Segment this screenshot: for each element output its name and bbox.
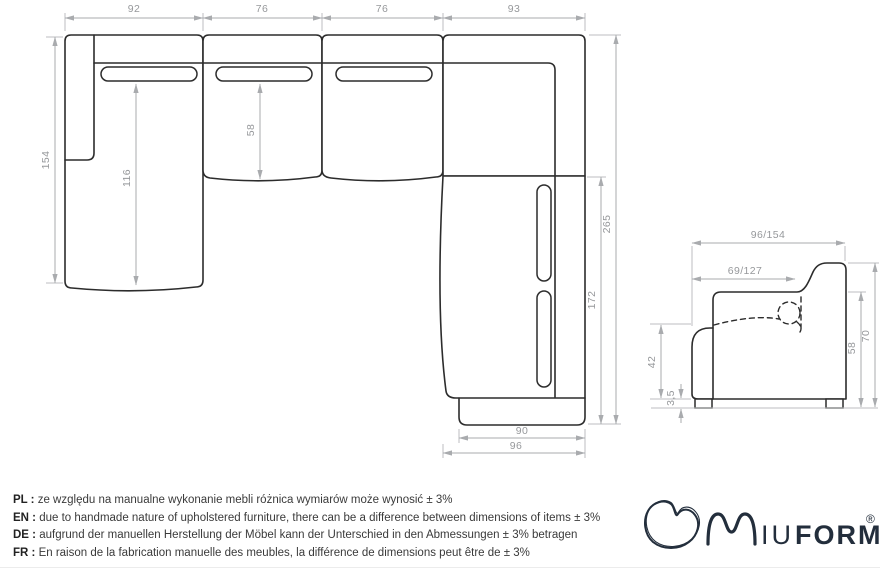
logo-m-glyph xyxy=(708,514,755,544)
dim-total-height: 70 xyxy=(860,330,872,342)
dim-chaise-seat: 116 xyxy=(121,169,133,187)
headrest-strip-2 xyxy=(216,67,312,81)
note-de-text: aufgrund der manuellen Herstellung der M… xyxy=(39,529,577,541)
dim-leg-height: 3,5 xyxy=(665,390,677,406)
corner-section xyxy=(443,35,585,176)
profile-leg-back xyxy=(826,399,843,408)
dim-right-total: 265 xyxy=(601,215,613,234)
right-section xyxy=(440,176,585,398)
note-de: DE : aufgrund der manuellen Herstellung … xyxy=(13,527,600,545)
dim-width-seg1: 92 xyxy=(128,3,140,15)
dim-bottom-width: 96 xyxy=(510,440,522,452)
note-en-text: due to handmade nature of upholstered fu… xyxy=(39,512,600,524)
profile-leg-front xyxy=(695,399,712,408)
headrest-strip-5 xyxy=(537,291,551,387)
dim-seat-depth: 58 xyxy=(245,124,257,136)
dim-back-height: 58 xyxy=(846,342,858,354)
dimension-sheet: { "plan": { "seg1": "92", "seg2": "76", … xyxy=(0,0,880,580)
profile-body xyxy=(713,263,846,399)
profile-view: 96/154 69/127 42 3,5 58 70 xyxy=(646,229,879,423)
dim-width-seg3: 76 xyxy=(376,3,388,15)
dim-seat-depth-profile: 69/127 xyxy=(728,265,763,277)
note-pl: PL : ze względu na manualne wykonanie me… xyxy=(13,492,600,510)
seat-section-3 xyxy=(322,35,443,181)
dim-seat-height: 42 xyxy=(646,356,658,368)
registered-trademark-icon: ® xyxy=(866,512,875,526)
dim-width-seg2: 76 xyxy=(256,3,268,15)
note-fr-text: En raison de la fabrication manuelle des… xyxy=(39,547,530,559)
miuform-logo: IU FORM ® xyxy=(640,489,880,563)
note-fr-label: FR : xyxy=(13,547,35,559)
seat-section-2 xyxy=(203,35,322,181)
headrest-strip-1 xyxy=(101,67,197,81)
headrest-strip-3 xyxy=(336,67,432,81)
dim-ottoman-width: 90 xyxy=(516,425,528,437)
headrest-strip-4 xyxy=(537,185,551,281)
dim-width-seg4: 93 xyxy=(508,3,520,15)
note-en-label: EN : xyxy=(13,512,36,524)
note-de-label: DE : xyxy=(13,529,36,541)
plan-view: 92 76 76 93 154 116 58 265 172 90 96 xyxy=(40,3,621,458)
note-fr: FR : En raison de la fabrication manuell… xyxy=(13,545,600,563)
disclaimer-notes: PL : ze względu na manualne wykonanie me… xyxy=(13,492,600,562)
ottoman-base xyxy=(459,398,585,425)
technical-drawing: 92 76 76 93 154 116 58 265 172 90 96 xyxy=(0,0,880,480)
dim-total-depth: 96/154 xyxy=(751,229,786,241)
dim-right-seat: 172 xyxy=(586,291,598,310)
note-pl-label: PL : xyxy=(13,494,35,506)
note-pl-text: ze względu na manualne wykonanie mebli r… xyxy=(38,494,453,506)
dim-chaise-length: 154 xyxy=(40,151,52,170)
profile-armrest xyxy=(692,328,713,399)
logo-text-iu: IU xyxy=(761,520,794,550)
logo-bean-icon xyxy=(645,498,701,548)
note-en: EN : due to handmade nature of upholster… xyxy=(13,510,600,528)
bottom-divider-line xyxy=(0,567,880,568)
